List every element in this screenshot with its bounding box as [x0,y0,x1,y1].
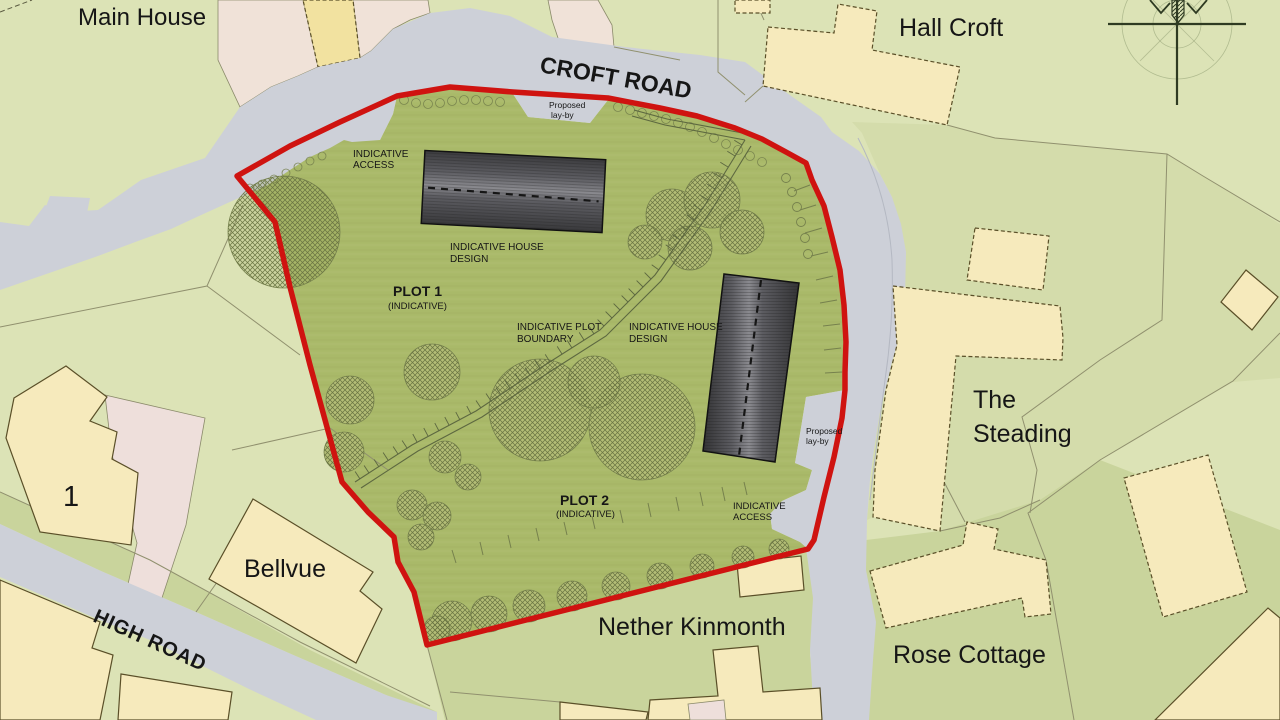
svg-text:Main House: Main House [78,4,206,31]
svg-text:1: 1 [63,481,79,513]
svg-text:ACCESS: ACCESS [353,160,394,171]
svg-text:INDICATIVE HOUSE: INDICATIVE HOUSE [629,322,723,333]
svg-text:INDICATIVE HOUSE: INDICATIVE HOUSE [450,242,544,253]
svg-text:INDICATIVE: INDICATIVE [733,501,786,512]
svg-text:lay-by: lay-by [806,436,829,446]
svg-text:Nether Kinmonth: Nether Kinmonth [598,613,786,641]
svg-text:ACCESS: ACCESS [733,512,772,523]
svg-text:PLOT 1: PLOT 1 [393,283,442,299]
svg-text:The: The [973,386,1016,414]
svg-text:BOUNDARY: BOUNDARY [517,334,574,345]
svg-text:lay-by: lay-by [551,110,574,120]
svg-text:Bellvue: Bellvue [244,555,326,583]
svg-text:INDICATIVE PLOT: INDICATIVE PLOT [517,322,601,333]
svg-text:Rose Cottage: Rose Cottage [893,641,1046,669]
svg-text:INDICATIVE: INDICATIVE [353,149,409,160]
svg-text:DESIGN: DESIGN [629,334,667,345]
svg-text:(INDICATIVE): (INDICATIVE) [556,509,615,520]
svg-text:Proposed: Proposed [549,100,586,110]
svg-text:(INDICATIVE): (INDICATIVE) [388,301,447,312]
svg-text:Steading: Steading [973,420,1072,448]
svg-text:DESIGN: DESIGN [450,254,488,265]
svg-text:PLOT 2: PLOT 2 [560,492,609,508]
svg-text:Proposed: Proposed [806,426,843,436]
svg-text:Hall Croft: Hall Croft [899,14,1003,42]
